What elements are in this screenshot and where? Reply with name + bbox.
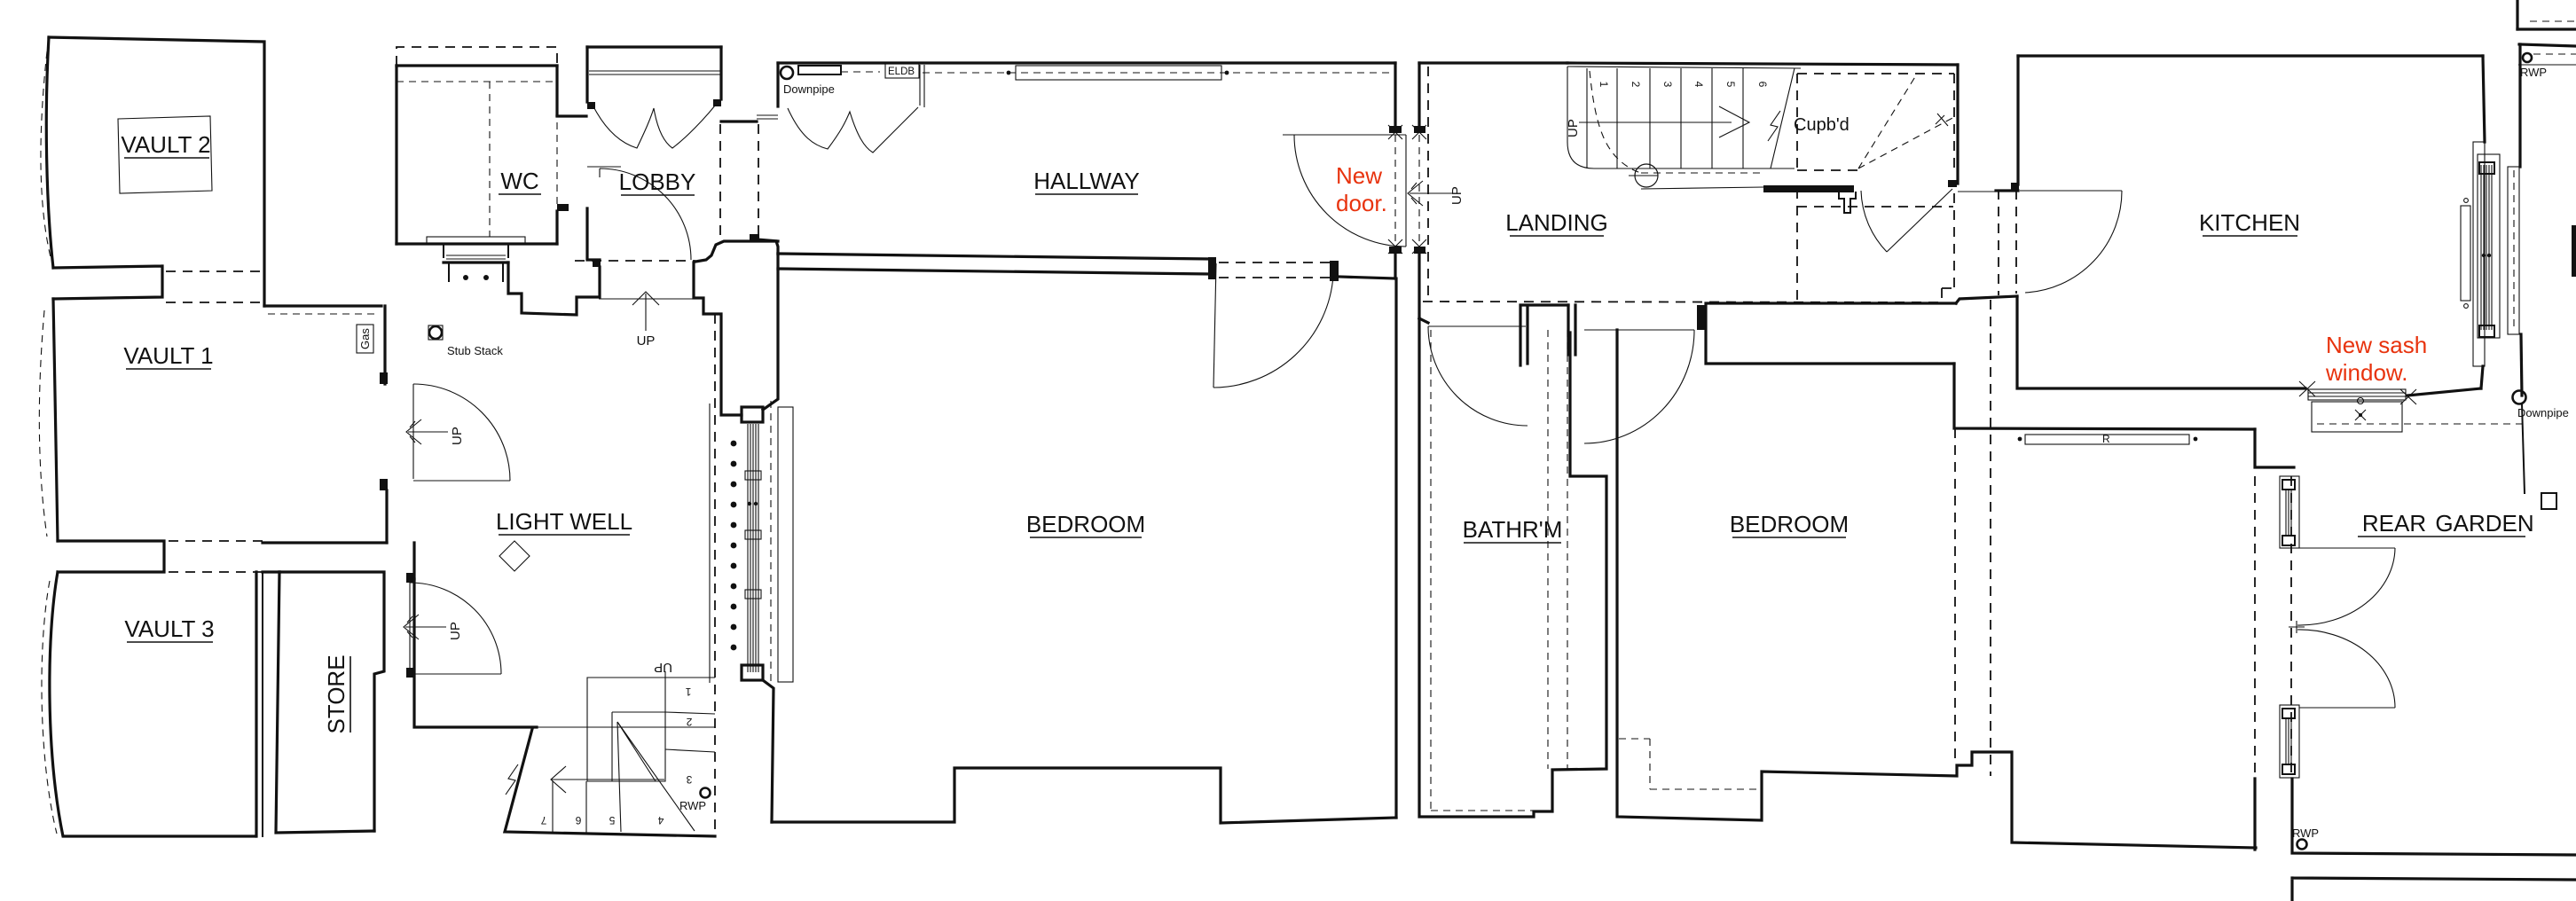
- svg-text:6: 6: [575, 814, 581, 827]
- svg-text:Stub Stack: Stub Stack: [447, 344, 503, 357]
- svg-text:door.: door.: [1336, 190, 1387, 216]
- svg-text:KITCHEN: KITCHEN: [2199, 209, 2300, 236]
- svg-text:LIGHT WELL: LIGHT WELL: [496, 508, 632, 535]
- svg-text:R: R: [2102, 433, 2110, 445]
- svg-text:VAULT 3: VAULT 3: [124, 615, 214, 642]
- svg-text:Gas: Gas: [358, 328, 372, 349]
- svg-text:RWP: RWP: [679, 799, 706, 812]
- svg-text:5: 5: [1724, 82, 1737, 88]
- svg-text:New sash: New sash: [2326, 332, 2427, 358]
- svg-text:7: 7: [540, 814, 546, 827]
- svg-text:GARDEN: GARDEN: [2435, 510, 2533, 537]
- svg-text:UP: UP: [450, 427, 465, 445]
- svg-text:LOBBY: LOBBY: [619, 168, 696, 195]
- svg-text:WC: WC: [500, 168, 538, 194]
- svg-text:1: 1: [685, 686, 691, 698]
- svg-text:5: 5: [609, 814, 615, 827]
- svg-text:BATHR'M: BATHR'M: [1463, 516, 1563, 543]
- svg-text:Downpipe: Downpipe: [783, 82, 835, 96]
- svg-text:2: 2: [1630, 82, 1642, 88]
- svg-text:UP: UP: [1449, 186, 1465, 205]
- svg-text:ELDB: ELDB: [888, 67, 915, 77]
- svg-text:New: New: [1336, 162, 1382, 189]
- svg-text:UP: UP: [448, 622, 463, 640]
- svg-text:4: 4: [657, 814, 664, 827]
- svg-text:2: 2: [686, 716, 692, 728]
- svg-text:RWP: RWP: [2292, 827, 2319, 840]
- svg-text:UP: UP: [654, 660, 672, 675]
- svg-text:4: 4: [1692, 82, 1705, 88]
- svg-text:VAULT 1: VAULT 1: [123, 342, 213, 369]
- svg-text:REAR: REAR: [2362, 510, 2426, 537]
- svg-text:RWP: RWP: [2520, 66, 2547, 79]
- svg-text:BEDROOM: BEDROOM: [1026, 511, 1145, 537]
- svg-text:UP: UP: [1566, 119, 1581, 137]
- svg-text:window.: window.: [2325, 359, 2408, 386]
- svg-text:HALLWAY: HALLWAY: [1033, 168, 1139, 194]
- svg-text:3: 3: [1661, 82, 1674, 88]
- svg-text:VAULT 2: VAULT 2: [121, 131, 210, 158]
- svg-text:1: 1: [1598, 82, 1610, 88]
- svg-text:3: 3: [686, 773, 692, 786]
- svg-text:Cupb'd: Cupb'd: [1794, 115, 1850, 135]
- svg-text:STORE: STORE: [323, 654, 349, 733]
- svg-text:LANDING: LANDING: [1505, 209, 1608, 236]
- svg-text:6: 6: [1756, 82, 1769, 88]
- svg-text:UP: UP: [637, 333, 656, 349]
- svg-text:BEDROOM: BEDROOM: [1730, 511, 1849, 537]
- svg-text:Downpipe: Downpipe: [2517, 406, 2569, 419]
